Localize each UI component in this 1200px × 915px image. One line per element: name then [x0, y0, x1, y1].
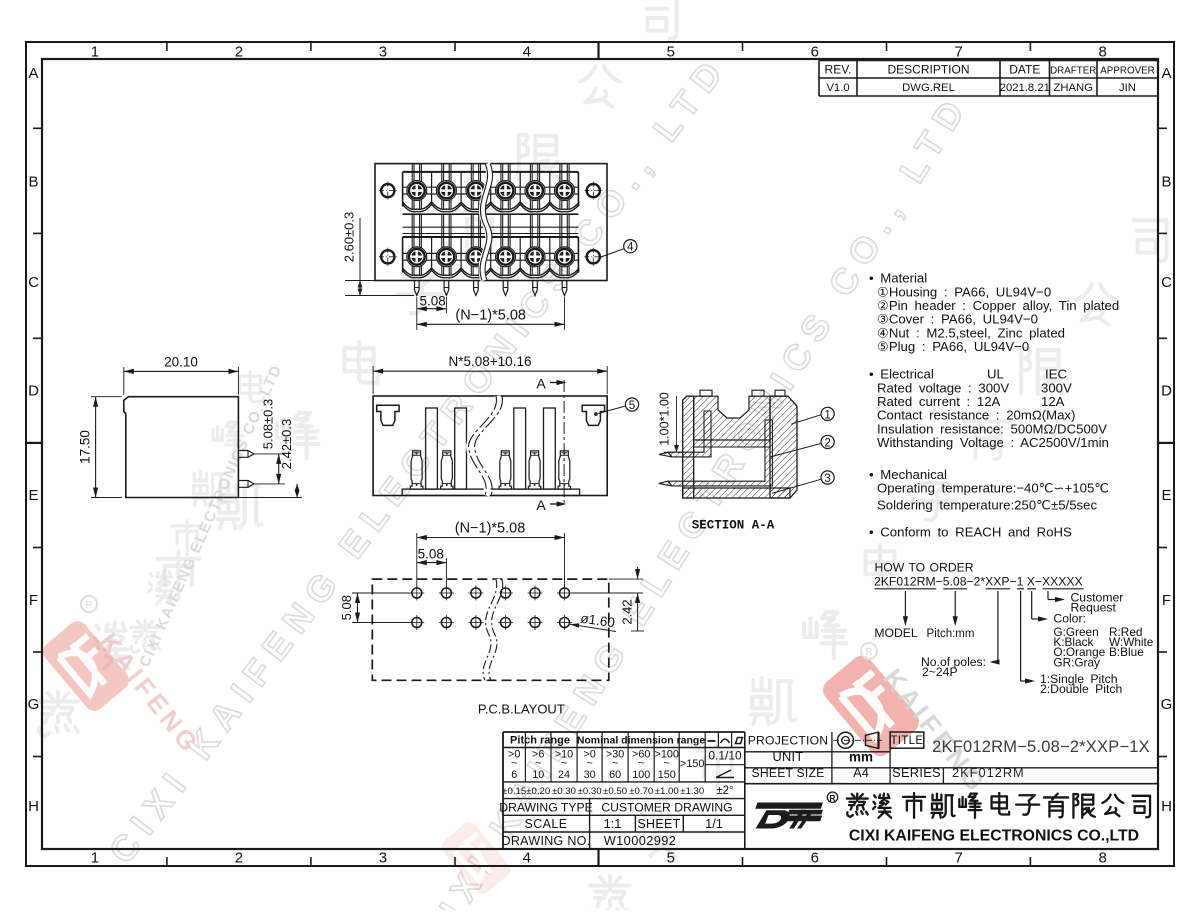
svg-text:2KF012RM−5.08−2*XXP−1 X−XXXXX: 2KF012RM−5.08−2*XXP−1 X−XXXXX	[874, 575, 1083, 589]
svg-text:5.08: 5.08	[339, 595, 354, 620]
svg-text:E: E	[1161, 487, 1171, 504]
svg-text:0.1/10: 0.1/10	[708, 749, 742, 763]
svg-text:~: ~	[586, 758, 592, 770]
svg-text:CUSTOMER DRAWING: CUSTOMER DRAWING	[601, 801, 732, 815]
svg-text:2: 2	[824, 437, 830, 449]
svg-text:±2°: ±2°	[716, 785, 733, 797]
svg-text:Pitch:mm: Pitch:mm	[927, 628, 975, 640]
svg-text:2KF012RM: 2KF012RM	[952, 765, 1025, 780]
svg-text:H: H	[28, 798, 39, 815]
svg-text:V1.0: V1.0	[826, 82, 849, 94]
svg-text:SCALE: SCALE	[525, 817, 568, 831]
svg-text:~: ~	[511, 758, 517, 770]
svg-text:DRAFTER: DRAFTER	[1050, 66, 1096, 77]
svg-text:2.42: 2.42	[620, 599, 635, 624]
svg-text:~: ~	[561, 758, 567, 770]
svg-text:R: R	[865, 647, 872, 658]
svg-text:1: 1	[91, 850, 99, 867]
svg-text:H: H	[1161, 798, 1172, 815]
svg-text:W10002992: W10002992	[604, 833, 677, 848]
svg-text:N*5.08+10.16: N*5.08+10.16	[449, 354, 532, 369]
svg-text:A: A	[1161, 65, 1171, 82]
svg-text:7: 7	[955, 850, 963, 867]
svg-text:DRAWING TYPE: DRAWING TYPE	[499, 801, 592, 815]
svg-text:ZHANG: ZHANG	[1053, 82, 1093, 94]
svg-text:F: F	[1162, 592, 1171, 609]
svg-text:(N−1)*5.08: (N−1)*5.08	[455, 308, 526, 324]
svg-text:5: 5	[629, 400, 635, 412]
svg-text:Nominal dimension range: Nominal dimension range	[577, 735, 706, 747]
svg-text:6: 6	[511, 769, 517, 781]
svg-text:4: 4	[523, 850, 531, 867]
svg-text:TITLE: TITLE	[890, 735, 923, 747]
svg-text:mm: mm	[849, 750, 873, 765]
svg-text:10: 10	[532, 769, 544, 781]
svg-text:4: 4	[627, 242, 634, 254]
svg-text:20.10: 20.10	[164, 354, 198, 369]
svg-text:>150: >150	[680, 758, 704, 770]
svg-text:5.08: 5.08	[418, 546, 444, 561]
svg-text:3: 3	[379, 44, 387, 61]
svg-text:A4: A4	[853, 765, 869, 780]
svg-text:5: 5	[667, 850, 675, 867]
svg-text:MODEL: MODEL	[874, 626, 918, 640]
svg-text:8: 8	[1099, 850, 1107, 867]
svg-text:Operating temperature:−40℃∽+10: Operating temperature:−40℃∽+105℃	[877, 481, 1109, 496]
svg-text:±0.20: ±0.20	[526, 786, 550, 797]
svg-text:5.08: 5.08	[419, 293, 445, 308]
svg-text:CIXI KAIFENG ELECTRONICS CO.,L: CIXI KAIFENG ELECTRONICS CO.,LTD	[849, 828, 1139, 845]
svg-text:R: R	[829, 793, 835, 803]
svg-text:±1.30: ±1.30	[680, 786, 704, 797]
svg-text:C: C	[1161, 274, 1172, 291]
svg-text:8: 8	[1099, 44, 1107, 61]
svg-text:D: D	[28, 383, 39, 400]
svg-text:2: 2	[235, 850, 243, 867]
svg-text:• Conform to REACH and RoHS: • Conform to REACH and RoHS	[869, 525, 1072, 540]
svg-text:DRAWING NO.: DRAWING NO.	[502, 834, 591, 848]
svg-text:2:Double Pitch: 2:Double Pitch	[1040, 682, 1122, 696]
svg-text:6: 6	[811, 44, 819, 61]
svg-text:SECTION A-A: SECTION A-A	[692, 519, 775, 533]
svg-text:(N−1)*5.08: (N−1)*5.08	[455, 520, 526, 536]
svg-text:A: A	[536, 376, 546, 392]
svg-text:A: A	[28, 65, 38, 82]
svg-text:SHEET: SHEET	[637, 817, 680, 831]
svg-text:±0.50: ±0.50	[603, 786, 627, 797]
svg-text:Withstanding Voltage : AC2500V: Withstanding Voltage : AC2500V/1min	[877, 435, 1109, 450]
svg-text:SERIES: SERIES	[892, 765, 941, 780]
svg-text:~: ~	[664, 758, 670, 770]
svg-text:60: 60	[609, 769, 621, 781]
svg-text:B: B	[28, 174, 38, 191]
svg-text:~: ~	[535, 758, 541, 770]
svg-text:A: A	[536, 497, 546, 513]
svg-text:D: D	[1161, 383, 1172, 400]
svg-text:JIN: JIN	[1119, 82, 1136, 94]
svg-text:5.08±0.3: 5.08±0.3	[261, 399, 276, 450]
svg-text:B:Blue: B:Blue	[1109, 645, 1144, 659]
svg-text:R: R	[85, 600, 92, 611]
svg-text:~: ~	[638, 758, 644, 770]
svg-text:GR:Gray: GR:Gray	[1053, 655, 1100, 669]
svg-text:1.00*1.00: 1.00*1.00	[658, 392, 672, 446]
svg-text:E: E	[28, 487, 38, 504]
svg-text:6: 6	[811, 850, 819, 867]
svg-text:1: 1	[91, 44, 99, 61]
svg-text:DATE: DATE	[1009, 63, 1040, 77]
svg-text:G: G	[28, 696, 40, 713]
svg-text:24: 24	[558, 769, 570, 781]
svg-text:±1.00: ±1.00	[655, 786, 679, 797]
svg-text:1/1: 1/1	[705, 816, 723, 831]
svg-text:DESCRIPTION: DESCRIPTION	[887, 63, 969, 77]
svg-text:Pitch range: Pitch range	[510, 735, 570, 747]
svg-text:B: B	[1161, 174, 1171, 191]
svg-text:2KF012RM−5.08−2*XXP−1X: 2KF012RM−5.08−2*XXP−1X	[932, 738, 1150, 756]
svg-text:REV.: REV.	[825, 63, 852, 77]
svg-text:30: 30	[584, 769, 596, 781]
svg-text:1:1: 1:1	[604, 816, 622, 831]
svg-text:⑤Plug : PA66, UL94V−0: ⑤Plug : PA66, UL94V−0	[877, 339, 1029, 354]
svg-text:±0.70: ±0.70	[629, 786, 653, 797]
svg-text:3: 3	[379, 850, 387, 867]
svg-text:5: 5	[667, 44, 675, 61]
svg-text:F: F	[29, 592, 38, 609]
svg-text:±0.30: ±0.30	[578, 786, 602, 797]
svg-text:C: C	[28, 274, 39, 291]
svg-text:4: 4	[523, 44, 531, 61]
svg-text:~: ~	[612, 758, 618, 770]
svg-text:2: 2	[235, 44, 243, 61]
svg-text:±0.30: ±0.30	[552, 786, 576, 797]
svg-text:1: 1	[824, 409, 830, 421]
svg-text:SHEET SIZE: SHEET SIZE	[752, 766, 825, 780]
svg-text:17.50: 17.50	[78, 430, 93, 464]
svg-text:G: G	[1161, 696, 1173, 713]
svg-text:Soldering temperature:250℃±5/5: Soldering temperature:250℃±5/5sec	[877, 498, 1097, 513]
svg-text:PROJECTION: PROJECTION	[748, 734, 829, 748]
svg-text:P.C.B.LAYOUT: P.C.B.LAYOUT	[478, 702, 565, 717]
svg-text:2.60±0.3: 2.60±0.3	[342, 212, 357, 263]
svg-text:2.42±0.3: 2.42±0.3	[279, 419, 294, 470]
svg-text:2021.8.21: 2021.8.21	[1000, 82, 1050, 94]
svg-text:7: 7	[955, 44, 963, 61]
svg-text:2~24P: 2~24P	[922, 665, 958, 679]
svg-text:±0.15: ±0.15	[502, 786, 526, 797]
svg-text:APPROVER: APPROVER	[1100, 66, 1154, 77]
svg-text:• Material: • Material	[869, 271, 927, 286]
svg-text:HOW TO ORDER: HOW TO ORDER	[875, 561, 974, 575]
svg-text:DWG.REL: DWG.REL	[902, 82, 955, 94]
svg-text:3: 3	[824, 473, 830, 485]
svg-text:100: 100	[632, 769, 650, 781]
svg-text:150: 150	[658, 769, 676, 781]
svg-text:UNIT: UNIT	[772, 749, 803, 764]
svg-text:Request: Request	[1071, 601, 1117, 615]
